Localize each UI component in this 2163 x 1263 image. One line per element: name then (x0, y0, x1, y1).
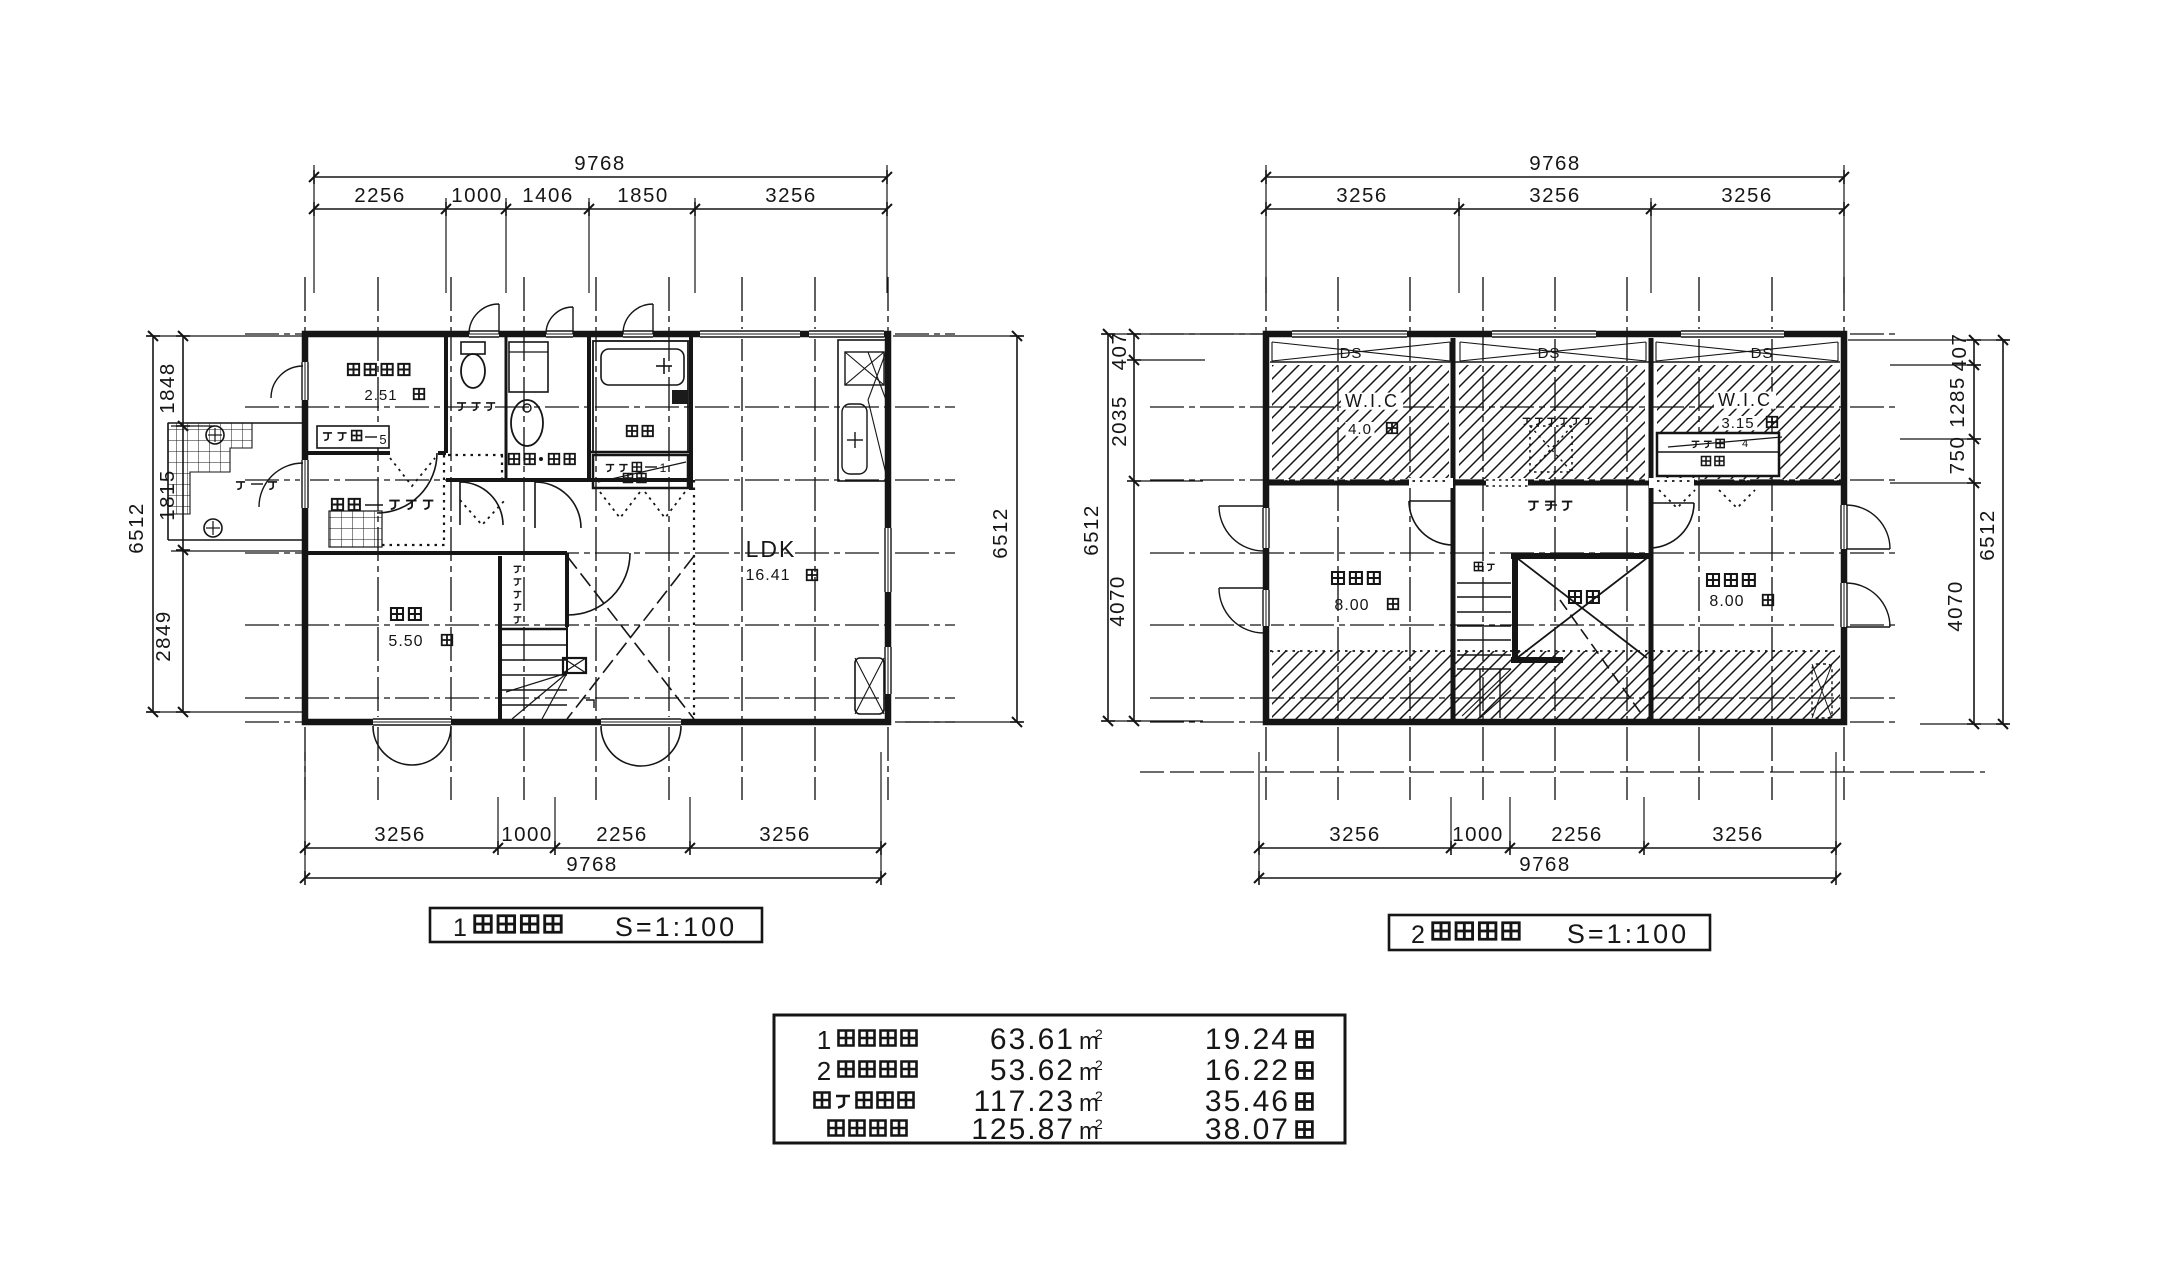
svg-text:2256: 2256 (354, 184, 406, 207)
svg-text:3256: 3256 (374, 823, 426, 846)
svg-text:5.50: 5.50 (388, 633, 423, 650)
svg-text:4: 4 (1742, 438, 1748, 450)
svg-text:1: 1 (660, 461, 667, 475)
svg-text:W.I.C: W.I.C (1718, 390, 1772, 410)
svg-text:125.87: 125.87 (971, 1113, 1075, 1146)
svg-text:3256: 3256 (765, 184, 817, 207)
svg-text:1000: 1000 (451, 184, 503, 207)
svg-text:2: 2 (817, 1056, 831, 1086)
svg-text:3256: 3256 (1721, 184, 1773, 207)
svg-text:6512: 6512 (1080, 504, 1103, 556)
svg-text:9768: 9768 (574, 152, 626, 175)
svg-text:DS: DS (1538, 345, 1561, 362)
svg-text:2: 2 (1411, 921, 1425, 949)
svg-text:38.07: 38.07 (1205, 1113, 1290, 1146)
svg-text:9768: 9768 (566, 853, 618, 876)
svg-text:2: 2 (1095, 1057, 1103, 1073)
svg-text:6512: 6512 (989, 507, 1012, 559)
svg-text:2: 2 (1095, 1088, 1103, 1104)
svg-text:63.61: 63.61 (990, 1023, 1075, 1056)
svg-text:DS: DS (1751, 345, 1774, 362)
svg-text:1848: 1848 (156, 362, 179, 414)
svg-text:407: 407 (1108, 332, 1131, 371)
svg-text:3.15: 3.15 (1721, 415, 1754, 432)
svg-text:2: 2 (1095, 1116, 1103, 1132)
svg-text:8.00: 8.00 (1709, 593, 1744, 610)
svg-text:3256: 3256 (1529, 184, 1581, 207)
svg-text:6512: 6512 (1976, 509, 1999, 561)
svg-text:S=1:100: S=1:100 (1567, 919, 1689, 949)
svg-text:3256: 3256 (1336, 184, 1388, 207)
svg-text:1: 1 (817, 1025, 831, 1055)
svg-text:53.62: 53.62 (990, 1054, 1075, 1087)
svg-text:6512: 6512 (125, 502, 148, 554)
svg-text:5: 5 (379, 432, 386, 447)
svg-text:3256: 3256 (759, 823, 811, 846)
svg-text:W.I.C: W.I.C (1345, 391, 1399, 411)
svg-text:1000: 1000 (501, 823, 553, 846)
svg-text:S=1:100: S=1:100 (615, 912, 737, 942)
svg-text:4070: 4070 (1106, 575, 1129, 627)
svg-text:2256: 2256 (596, 823, 648, 846)
svg-text:16.22: 16.22 (1205, 1054, 1290, 1087)
svg-text:4.0: 4.0 (1348, 421, 1372, 438)
svg-text:750: 750 (1946, 436, 1969, 475)
svg-text:9768: 9768 (1529, 152, 1581, 175)
svg-text:3256: 3256 (1329, 823, 1381, 846)
svg-text:1: 1 (453, 914, 467, 942)
svg-text:16.41: 16.41 (745, 567, 790, 584)
svg-text:1285: 1285 (1946, 376, 1969, 428)
svg-text:DS: DS (1340, 345, 1363, 362)
svg-text:2256: 2256 (1551, 823, 1603, 846)
svg-text:2849: 2849 (152, 610, 175, 662)
svg-text:2: 2 (1095, 1026, 1103, 1042)
svg-text:1406: 1406 (522, 184, 574, 207)
svg-text:2035: 2035 (1108, 395, 1131, 447)
svg-text:3256: 3256 (1712, 823, 1764, 846)
svg-text:4070: 4070 (1944, 580, 1967, 632)
svg-text:19.24: 19.24 (1205, 1023, 1290, 1056)
svg-text:2.51: 2.51 (364, 387, 397, 404)
svg-text:8.00: 8.00 (1334, 597, 1369, 614)
svg-text:9768: 9768 (1519, 853, 1571, 876)
svg-text:1850: 1850 (617, 184, 669, 207)
svg-text:LDK: LDK (746, 536, 797, 562)
svg-text:1000: 1000 (1452, 823, 1504, 846)
